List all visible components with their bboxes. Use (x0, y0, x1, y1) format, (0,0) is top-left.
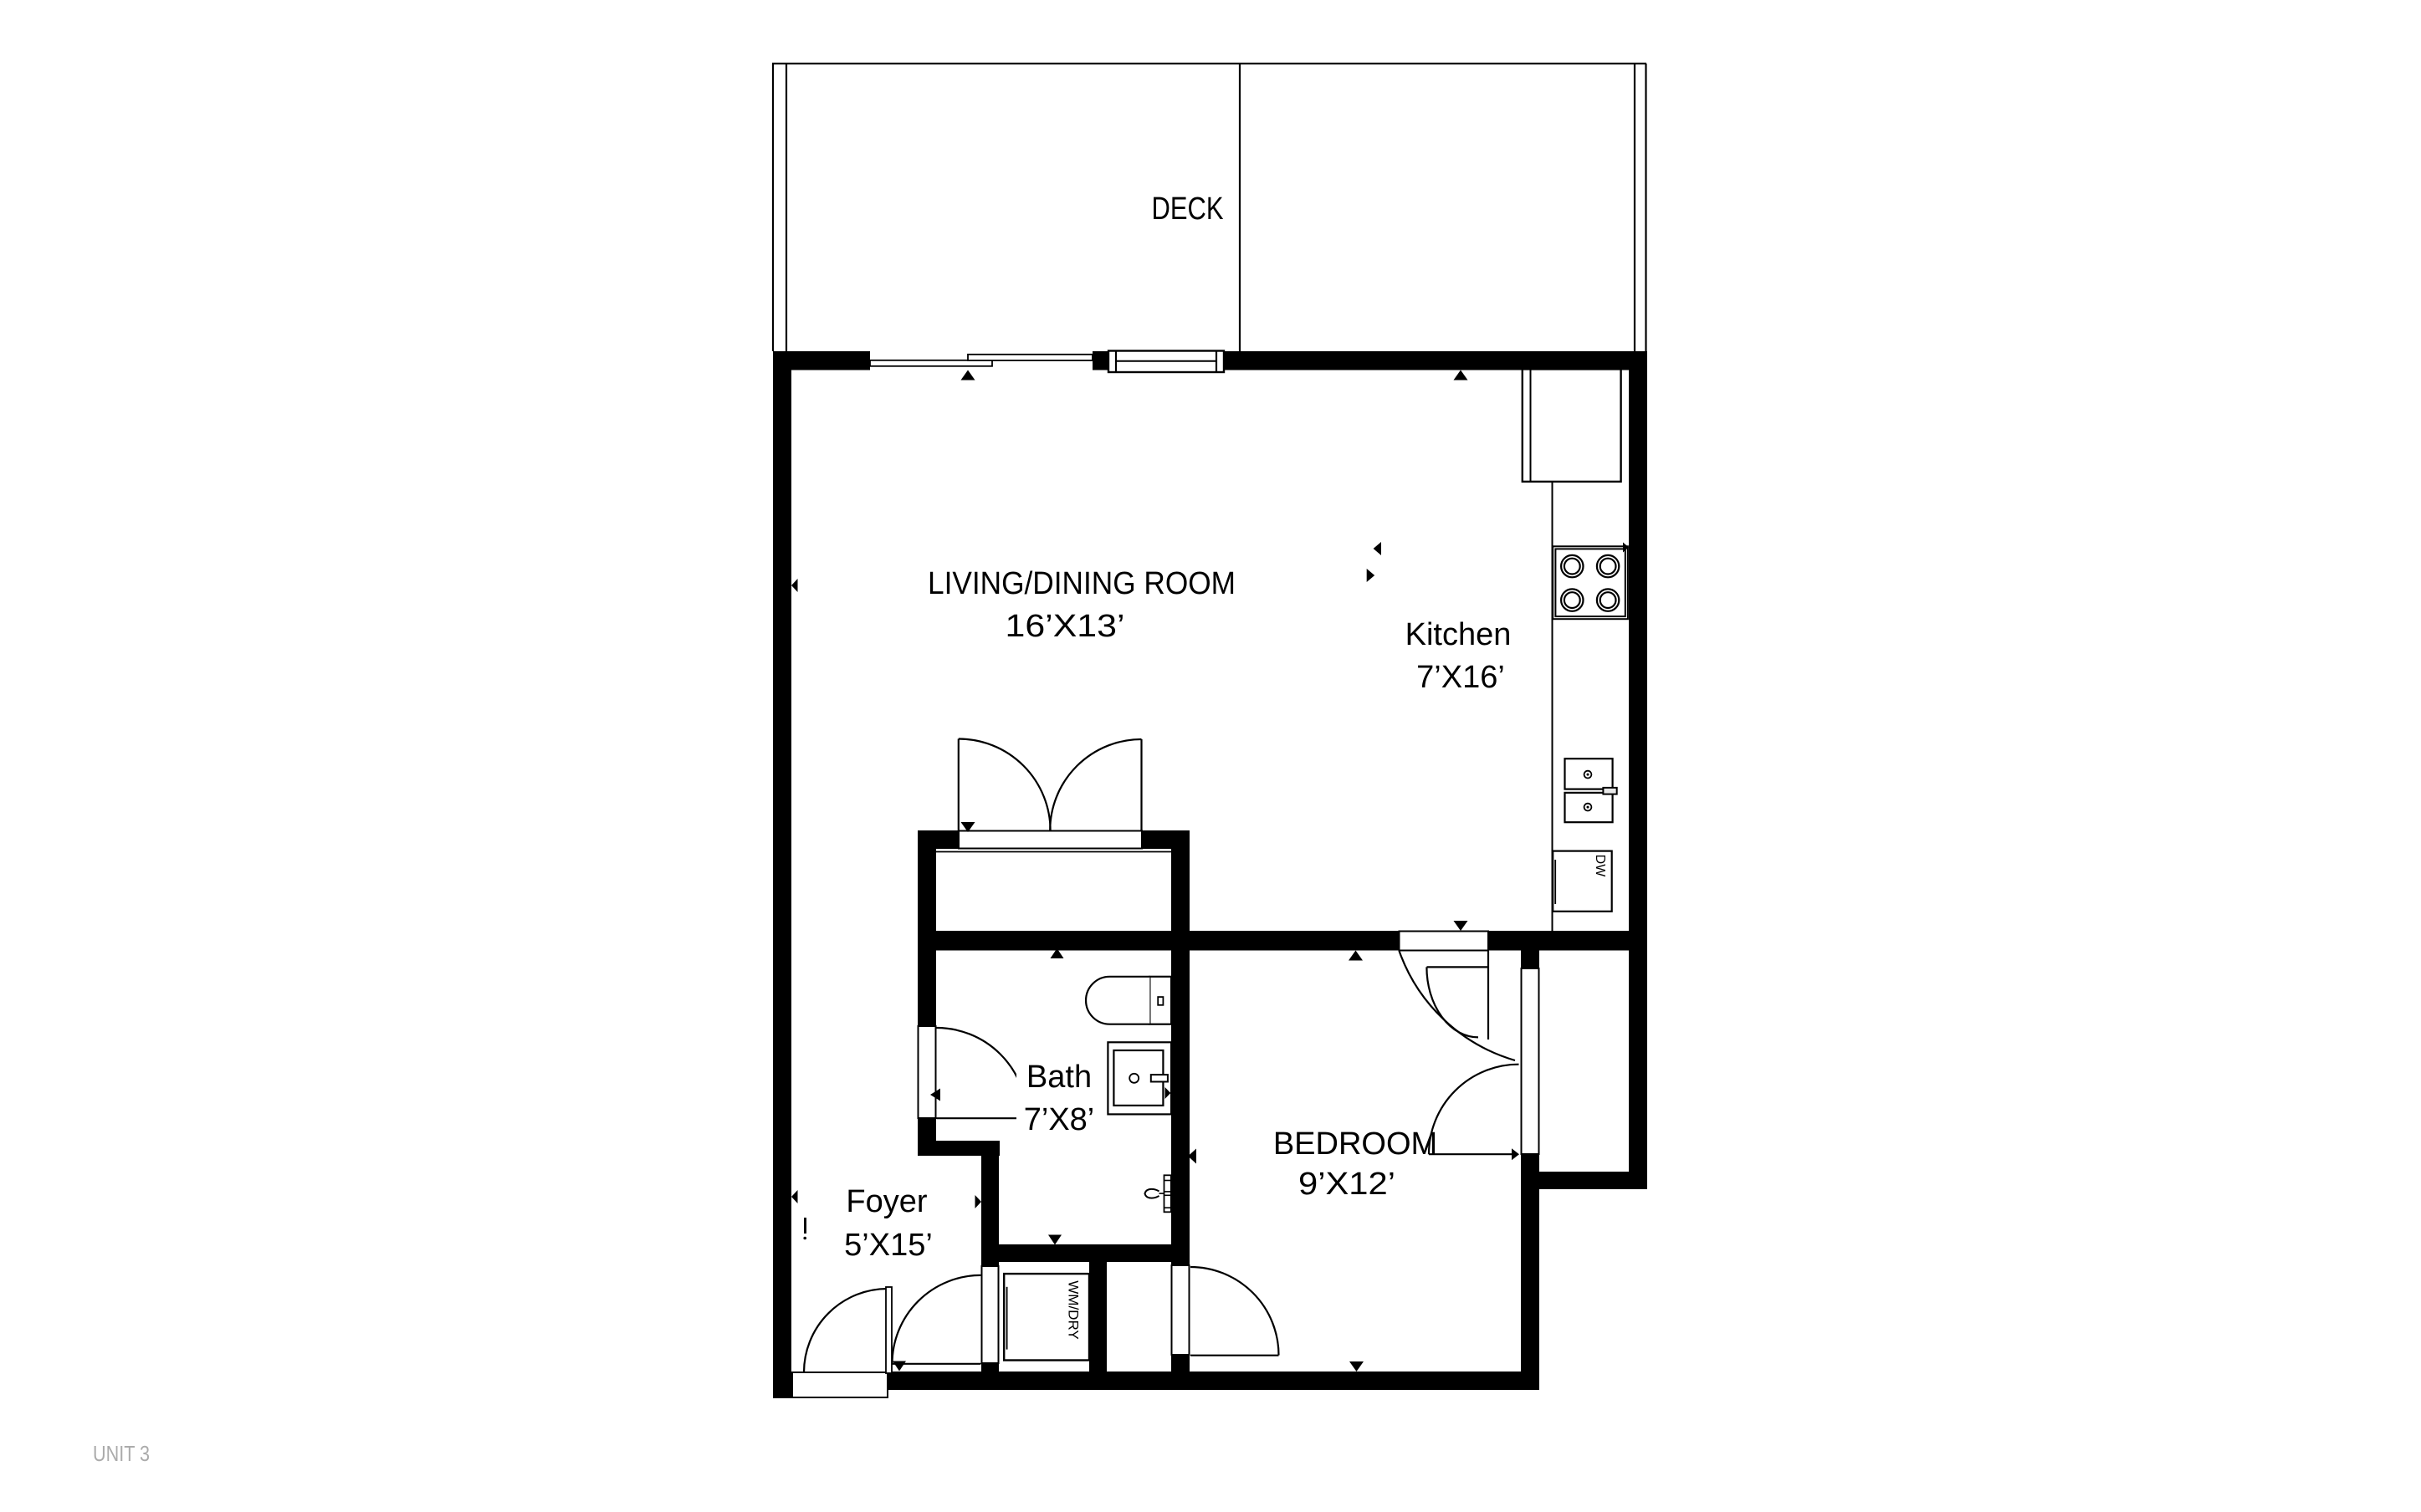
svg-text:16’X13’: 16’X13’ (1006, 609, 1125, 644)
svg-text:UNIT 3: UNIT 3 (93, 1441, 150, 1466)
svg-text:WM/DRY: WM/DRY (1066, 1280, 1082, 1340)
svg-text:7’X8’: 7’X8’ (1024, 1102, 1095, 1137)
svg-text:7’X16’: 7’X16’ (1416, 660, 1505, 695)
svg-text:Bath: Bath (1026, 1060, 1092, 1095)
svg-text:DW: DW (1593, 855, 1607, 878)
svg-text:DECK: DECK (1152, 192, 1224, 227)
svg-text:BEDROOM: BEDROOM (1273, 1126, 1437, 1162)
svg-text:Foyer: Foyer (846, 1184, 927, 1219)
svg-text:LIVING/DINING ROOM: LIVING/DINING ROOM (928, 566, 1236, 601)
svg-text:Kitchen: Kitchen (1405, 617, 1512, 652)
svg-text:5’X15’: 5’X15’ (844, 1228, 933, 1263)
svg-text:9’X12’: 9’X12’ (1298, 1167, 1395, 1202)
